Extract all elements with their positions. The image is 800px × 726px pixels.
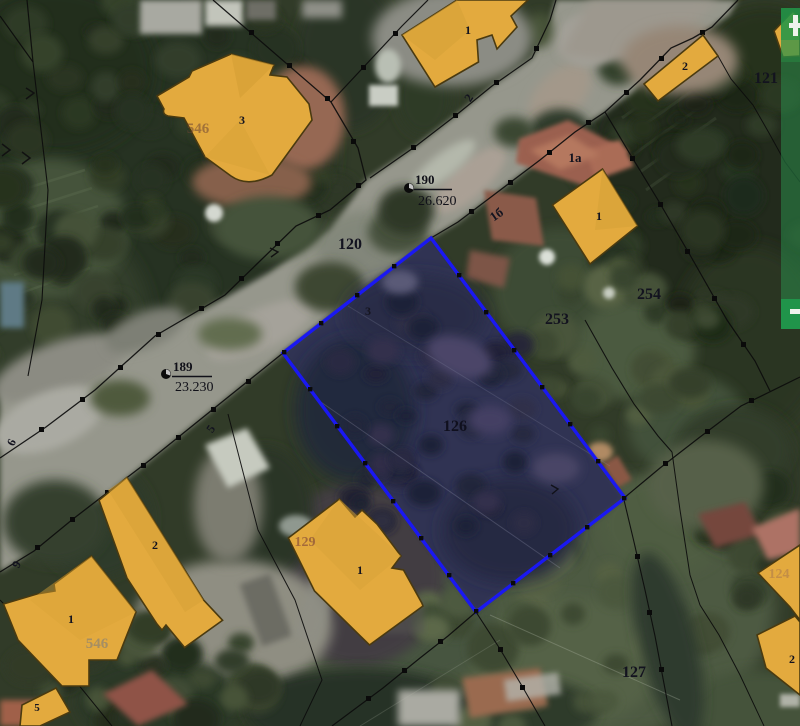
svg-text:189: 189 — [173, 359, 193, 374]
svg-text:121: 121 — [754, 70, 778, 87]
svg-text:120: 120 — [338, 236, 362, 253]
svg-text:546: 546 — [187, 121, 210, 137]
svg-text:2: 2 — [789, 652, 795, 666]
svg-text:126: 126 — [443, 418, 467, 435]
svg-text:26.620: 26.620 — [418, 194, 457, 209]
svg-text:3: 3 — [239, 113, 245, 127]
svg-text:129: 129 — [295, 535, 316, 550]
svg-text:190: 190 — [415, 172, 435, 187]
svg-text:23.230: 23.230 — [175, 380, 214, 395]
svg-text:5: 5 — [34, 702, 40, 714]
svg-text:3: 3 — [365, 304, 371, 318]
svg-text:127: 127 — [622, 664, 646, 681]
svg-text:1а: 1а — [569, 150, 583, 165]
svg-text:253: 253 — [545, 311, 569, 328]
svg-text:2: 2 — [152, 538, 158, 552]
svg-text:546: 546 — [86, 636, 109, 652]
svg-text:1: 1 — [357, 563, 363, 577]
svg-text:1: 1 — [465, 23, 471, 37]
svg-text:254: 254 — [637, 286, 661, 303]
svg-text:124: 124 — [769, 567, 790, 582]
svg-text:1: 1 — [596, 209, 602, 223]
svg-text:1: 1 — [68, 612, 74, 626]
svg-text:2: 2 — [682, 59, 688, 73]
